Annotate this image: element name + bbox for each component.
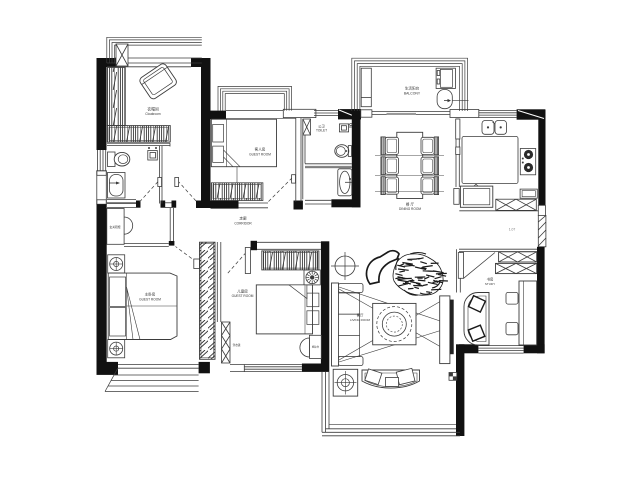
svg-text:书房: 书房 xyxy=(487,277,494,282)
svg-text:GUEST ROOM: GUEST ROOM xyxy=(232,294,254,298)
svg-text:CORRIDOR: CORRIDOR xyxy=(234,221,252,225)
svg-text:走廊: 走廊 xyxy=(239,216,247,221)
svg-text:TOILET: TOILET xyxy=(316,129,327,133)
svg-text:1.07: 1.07 xyxy=(509,228,516,232)
svg-text:生活阳台: 生活阳台 xyxy=(405,86,420,91)
svg-text:DINING ROOM: DINING ROOM xyxy=(399,207,421,211)
svg-text:GUEST ROOM: GUEST ROOM xyxy=(139,298,161,302)
svg-text:GUEST ROOM: GUEST ROOM xyxy=(249,152,271,156)
svg-text:LIVING ROOM: LIVING ROOM xyxy=(350,318,371,322)
svg-text:梳妆台: 梳妆台 xyxy=(312,345,320,349)
svg-text:主卧房: 主卧房 xyxy=(145,292,156,297)
svg-text:玄关鞋柜: 玄关鞋柜 xyxy=(109,225,120,229)
svg-text:客人房: 客人房 xyxy=(255,147,266,152)
svg-text:餐 厅: 餐 厅 xyxy=(406,201,415,206)
svg-text:穿衣镜: 穿衣镜 xyxy=(233,343,241,347)
svg-text:客厅: 客厅 xyxy=(357,313,364,318)
svg-text:儿童房: 儿童房 xyxy=(237,288,248,293)
svg-text:Cloakroom: Cloakroom xyxy=(145,112,161,116)
svg-text:BALCONY: BALCONY xyxy=(404,91,421,95)
svg-text:衣帽间: 衣帽间 xyxy=(147,107,159,112)
svg-text:STUDY: STUDY xyxy=(485,282,495,286)
